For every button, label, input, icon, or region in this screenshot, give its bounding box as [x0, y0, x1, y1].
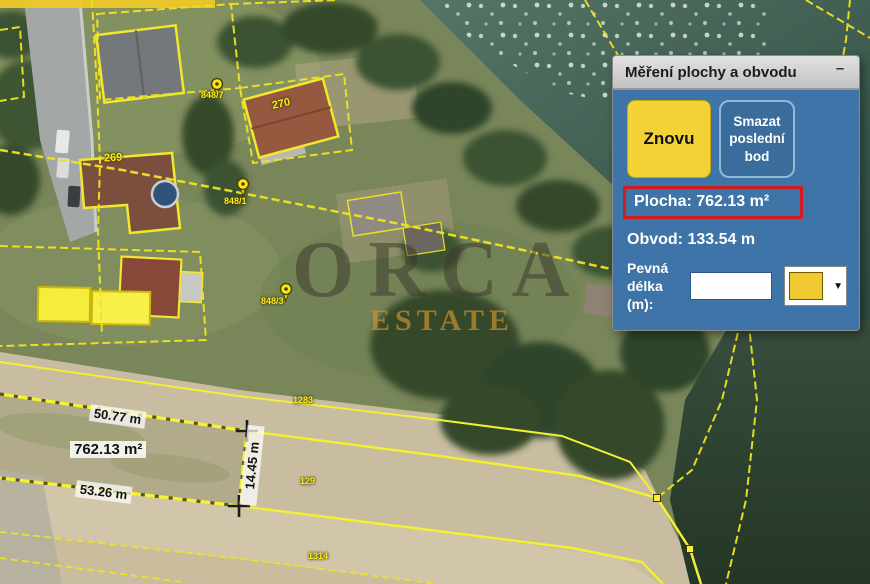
- again-button[interactable]: Znovu: [627, 100, 711, 178]
- panel-body: Znovu Smazat poslední bod Plocha: 762.13…: [613, 89, 859, 330]
- parcel-number: 848/1: [224, 196, 247, 206]
- parcel-number: 848/7: [201, 90, 224, 100]
- perimeter-value: Obvod: 133.54 m: [627, 231, 847, 249]
- measure-panel: Měření plochy a obvodu – Znovu Smazat po…: [612, 55, 860, 331]
- area-highlight-box: Plocha: 762.13 m²: [623, 186, 803, 219]
- parcel-number: 129: [300, 476, 315, 486]
- chevron-down-icon: ▼: [833, 281, 843, 292]
- delete-last-point-button[interactable]: Smazat poslední bod: [719, 100, 795, 178]
- area-value: Plocha: 762.13 m²: [634, 193, 769, 210]
- parcel-number: 1314: [308, 551, 328, 561]
- fixed-length-label: Pevná délka (m):: [627, 259, 690, 314]
- line-color-dropdown[interactable]: ▼: [784, 266, 847, 306]
- parcel-number: 1283: [293, 395, 313, 405]
- parcel-number: 848/3: [261, 296, 284, 306]
- panel-title-bar: Měření plochy a obvodu –: [613, 56, 859, 89]
- parcel-number: 269: [104, 152, 123, 165]
- map-measurement-screen: ORCA ESTATE 50.77 m 762.13 m² 53.26 m 14…: [0, 0, 870, 584]
- minimize-button[interactable]: –: [831, 64, 849, 80]
- color-swatch: [789, 272, 823, 300]
- measure-label-area: 762.13 m²: [70, 441, 146, 458]
- panel-title: Měření plochy a obvodu: [625, 64, 797, 81]
- highlighted-buildings: [38, 287, 151, 325]
- pool: [152, 181, 178, 207]
- fixed-length-input[interactable]: [690, 272, 772, 300]
